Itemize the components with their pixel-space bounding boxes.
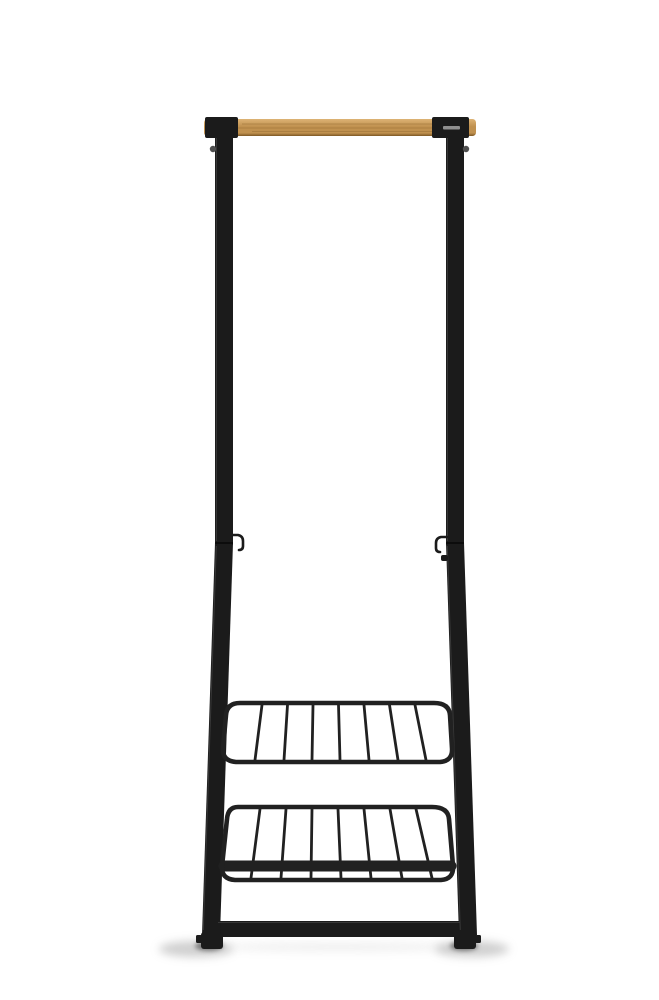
studio-background (0, 0, 659, 1000)
foot-right-stud (475, 935, 481, 943)
garment-hook-right-stub (441, 555, 448, 561)
foot-right (454, 932, 476, 949)
rail-clamp-left (205, 117, 238, 138)
logo-plate (443, 126, 460, 130)
right-post (446, 133, 464, 545)
left-post (215, 133, 233, 545)
shelf-wire (312, 705, 313, 760)
foot-left (201, 932, 223, 949)
center-floor-shadow (214, 943, 464, 952)
shelf-wire (339, 705, 341, 760)
garment-rack-illustration (0, 0, 659, 1000)
foot-left-stud (196, 935, 202, 943)
right-post-screw-knob (463, 146, 469, 152)
left-post-screw-knob (210, 146, 216, 152)
product-photo (0, 0, 659, 1000)
base-crossbar (216, 921, 462, 937)
